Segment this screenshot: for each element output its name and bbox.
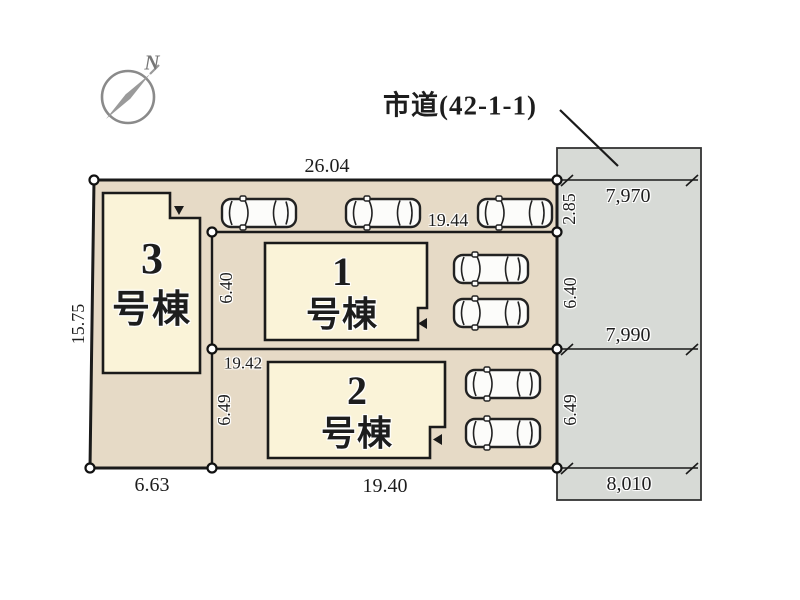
dim-road-mid-width: 7,990 (606, 325, 651, 345)
dim-right-mid-height: 6.40 (561, 277, 579, 309)
car-icon (346, 196, 420, 230)
building-3-number: 3 (141, 237, 163, 281)
car-icon (466, 416, 540, 450)
building-2-suffix: 号棟 (321, 417, 393, 452)
car-icon (454, 252, 528, 286)
site-plan: 市道(42-1-1) N 3 号棟 1 号棟 2 号棟 26.04 15.75 … (0, 0, 800, 600)
dim-road-top-width: 7,970 (606, 186, 651, 206)
car-icon (222, 196, 296, 230)
dim-plot-bottom-left-width: 6.63 (135, 475, 170, 495)
dim-road-bottom-width: 8,010 (607, 474, 652, 494)
dim-lot2-left-height: 6.49 (215, 394, 233, 426)
dim-plot-bottom-width: 19.40 (363, 476, 408, 496)
building-2-number: 2 (347, 371, 367, 411)
dim-plot-left-height: 15.75 (69, 304, 87, 345)
car-icon (478, 196, 552, 230)
building-3-outline (103, 193, 200, 373)
dim-lot2-top-width: 19.42 (224, 355, 262, 372)
building-3-suffix: 号棟 (112, 291, 192, 329)
compass-north-label: N (144, 53, 159, 74)
dim-lot1-top-width: 19.44 (428, 211, 469, 229)
dim-lot1-left-height: 6.40 (217, 272, 235, 304)
dim-right-bottom-height: 6.49 (561, 394, 579, 426)
car-icon (466, 367, 540, 401)
dim-plot-top-width: 26.04 (305, 156, 350, 176)
building-1-number: 1 (332, 252, 352, 292)
road-name-label: 市道(42-1-1) (383, 93, 537, 120)
car-icon (454, 296, 528, 330)
building-1-suffix: 号棟 (306, 298, 378, 333)
dim-right-top-height: 2.85 (560, 193, 578, 225)
